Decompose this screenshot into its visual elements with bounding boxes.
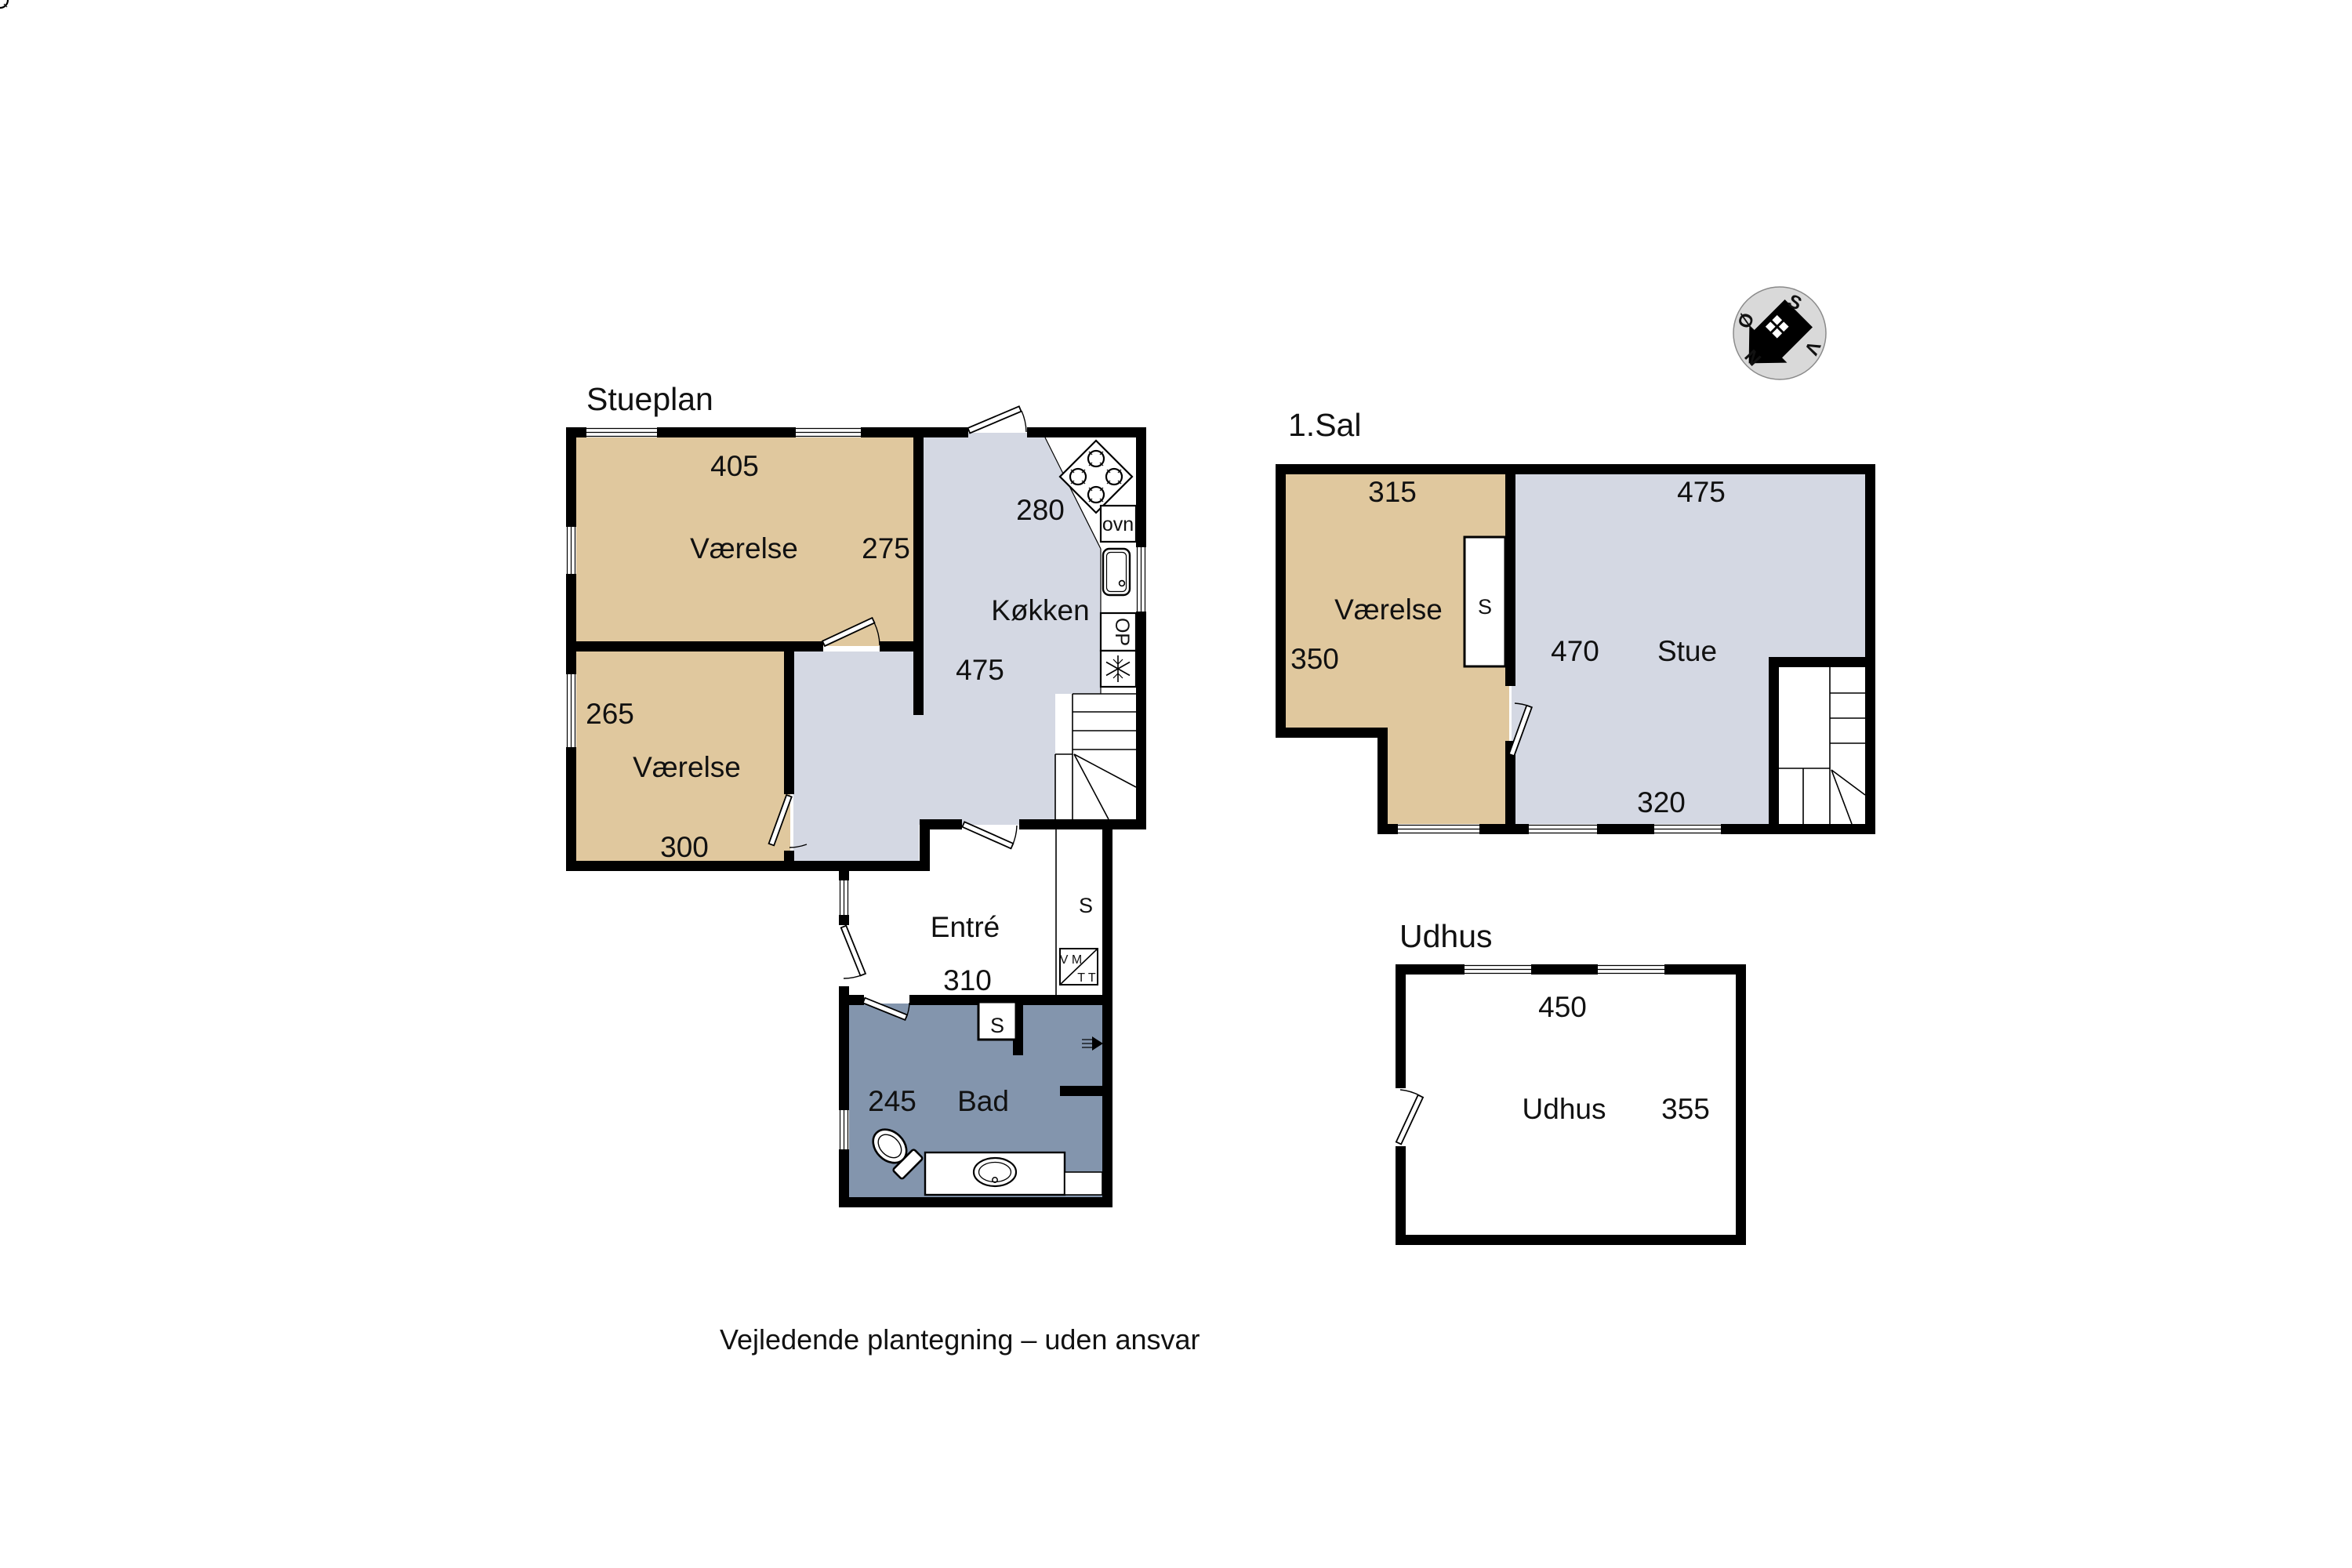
window-udhus-1 xyxy=(1465,964,1531,975)
bath-closet-label: S xyxy=(990,1014,1004,1037)
bath-width-label: 245 xyxy=(868,1085,916,1117)
outbuilding-plan: Udhus 450 Udhus 355 xyxy=(1396,918,1746,1245)
1sal-bedroom-name-label: Værelse xyxy=(1334,593,1443,626)
window-top-1 xyxy=(586,427,657,437)
window-kitchen-right xyxy=(1136,547,1146,612)
ground-floor-plan: ovn OP xyxy=(0,0,1146,1207)
first-floor-title: 1.Sal xyxy=(1288,407,1361,443)
floorplan-page: ovn OP xyxy=(0,0,2352,1568)
disclaimer-text: Vejledende plantegning – uden ansvar xyxy=(720,1323,1200,1356)
udhus-depth-label: 355 xyxy=(1661,1093,1710,1125)
first-floor-closet-box: S xyxy=(1465,537,1505,666)
1sal-bedroom-width-label: 315 xyxy=(1368,476,1417,508)
udhus-name-label: Udhus xyxy=(1523,1093,1606,1125)
kitchen-width-label: 475 xyxy=(956,654,1004,686)
stairs-first-floor xyxy=(1779,667,1865,824)
first-floor-windows xyxy=(1398,824,1721,834)
window-left-bedroom2 xyxy=(566,674,576,747)
dishwasher-label: OP xyxy=(1111,618,1133,646)
udhus-width-label: 450 xyxy=(1538,991,1587,1023)
living-width2-label: 320 xyxy=(1637,786,1686,818)
compass-rose: S Ø V N xyxy=(1730,287,1826,382)
dishwasher-box: OP xyxy=(1101,613,1136,651)
ground-floor-title: Stueplan xyxy=(586,381,713,417)
oven-label: ovn xyxy=(1102,514,1134,535)
bath-name-label: Bad xyxy=(957,1085,1009,1117)
bath-closet-box: S xyxy=(978,1002,1016,1040)
entre-closet-label: S xyxy=(1079,894,1093,917)
bedroom2-depth-label: 265 xyxy=(586,698,634,730)
bedroom2-width-label: 300 xyxy=(660,831,709,863)
door-outbuilding xyxy=(1396,1090,1423,1144)
bedroom1-depth-label: 275 xyxy=(862,532,910,564)
door-hall-entre xyxy=(962,822,1017,848)
window-bath-left xyxy=(839,1110,849,1149)
window-entre-left xyxy=(839,880,849,915)
door-kitchen-entrance xyxy=(967,406,1026,433)
washer-label: V M xyxy=(1060,953,1082,967)
oven-box: ovn xyxy=(1101,506,1136,542)
window-udhus-2 xyxy=(1598,964,1664,975)
window-1sal-1 xyxy=(1398,824,1479,834)
outbuilding-title: Udhus xyxy=(1399,918,1493,954)
window-top-2 xyxy=(796,427,861,437)
window-1sal-2 xyxy=(1529,824,1597,834)
living-name-label: Stue xyxy=(1657,635,1717,667)
entre-width-label: 310 xyxy=(943,964,992,996)
door-front-entrance xyxy=(841,926,866,978)
freezer-box xyxy=(1101,651,1136,687)
1sal-bedroom-depth-label: 350 xyxy=(1290,643,1339,675)
stairs-ground xyxy=(1055,694,1136,819)
sink-icon xyxy=(1103,549,1130,595)
washer-dryer-box: V M T T xyxy=(1060,949,1098,985)
dryer-label: T T xyxy=(1077,971,1096,985)
first-floor-plan: S 1.Sal 315 Værelse 350 475 470 Stue 320 xyxy=(1276,407,1875,834)
living-width-label: 475 xyxy=(1677,476,1726,508)
bedroom2-name-label: Værelse xyxy=(633,751,741,783)
entre-name-label: Entré xyxy=(931,911,1000,943)
entre-closet-area: S V M T T xyxy=(1056,829,1098,995)
kitchen-name-label: Køkken xyxy=(991,594,1089,626)
living-depth-label: 470 xyxy=(1551,635,1599,667)
window-left-bedroom1 xyxy=(566,527,576,574)
bedroom1-name-label: Værelse xyxy=(690,532,798,564)
window-1sal-3 xyxy=(1654,824,1721,834)
kitchen-depth-label: 280 xyxy=(1016,494,1065,526)
first-floor-closet-label: S xyxy=(1478,595,1492,619)
bedroom1-width-label: 405 xyxy=(710,450,759,482)
